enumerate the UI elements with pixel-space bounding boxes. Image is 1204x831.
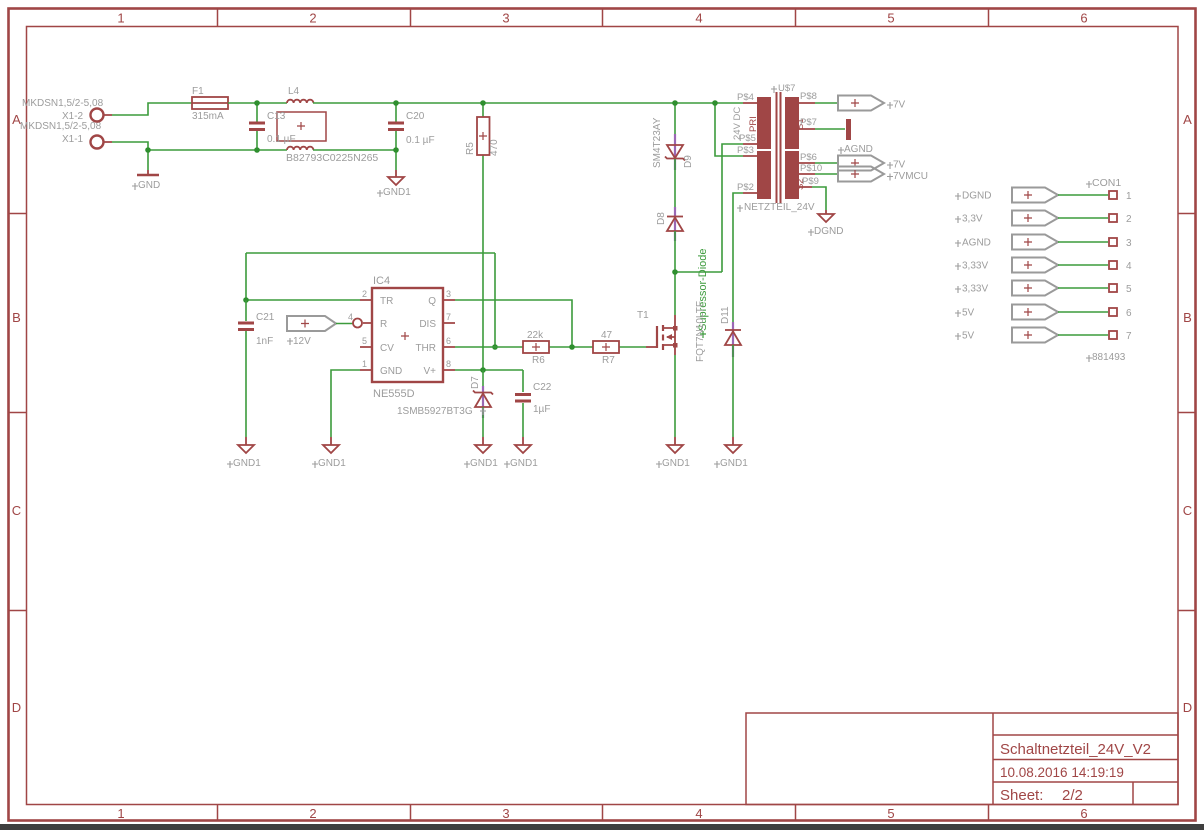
7v-label-mid: 7V xyxy=(893,160,906,171)
pin-p10: P$10 xyxy=(800,163,822,174)
pin-name-cv: CV xyxy=(380,343,394,354)
sheet-bottom-edge xyxy=(0,824,1204,830)
d7-value: 1SMB5927BT3G xyxy=(397,406,473,417)
diode-d7: D7 1SMB5927BT3G xyxy=(397,370,493,437)
con1-part-number: 881493 xyxy=(1092,352,1126,363)
diode-d11: D11 xyxy=(720,193,743,437)
f1-name: F1 xyxy=(192,86,204,97)
pin-p5: P$5 xyxy=(739,133,756,144)
pin-name-thr: THR xyxy=(415,343,436,354)
output-flag-7vmcu: 7VMCU xyxy=(815,167,928,183)
frame-row-c-left: C xyxy=(12,503,21,518)
diode-d8: D8 xyxy=(656,207,683,272)
c13-value: 0.1 µF xyxy=(267,134,296,145)
f1-value: 315mA xyxy=(192,111,224,122)
pin-name-dis: DIS xyxy=(419,319,436,330)
frame-col-6-top: 6 xyxy=(1080,11,1087,26)
c20-value: 0.1 µF xyxy=(406,135,435,146)
supply-flag-12v: 12V xyxy=(287,316,353,347)
gnd1-d11: GND1 xyxy=(714,437,748,469)
gnd1-label: GND1 xyxy=(383,187,411,198)
con1-row-6: 5V 6 xyxy=(955,305,1132,320)
con1-row-2: 3,3V 2 xyxy=(955,211,1132,226)
pin-number-2: 2 xyxy=(362,289,367,299)
gnd1-t1: GND1 xyxy=(656,437,690,469)
gnd1-c22: GND1 xyxy=(504,437,538,469)
r7-value: 47 xyxy=(601,330,613,341)
con1-row-5: 3,33V 5 xyxy=(955,281,1132,296)
project-title: Schaltnetzteil_24V_V2 xyxy=(1000,741,1151,758)
pin-number-3: 3 xyxy=(446,289,451,299)
c21-name: C21 xyxy=(256,312,275,323)
d11-name: D11 xyxy=(720,306,731,324)
frame-row-a-right: A xyxy=(1183,112,1192,127)
frame-col-6-bottom: 6 xyxy=(1080,806,1087,821)
d7-name: D7 xyxy=(470,376,481,389)
con1-row-3: AGND 3 xyxy=(955,235,1132,250)
con1-row-4: 3,33V 4 xyxy=(955,258,1132,273)
con1-pin-number: 3 xyxy=(1126,238,1132,249)
timer-section: C21 1nF 12V IC4 NE555D 2 4 5 1 3 7 6 xyxy=(238,253,646,437)
u7-value: NETZTEIL_24V xyxy=(744,202,815,213)
pin-p4: P$4 xyxy=(737,92,754,103)
con1-net-label: DGND xyxy=(962,191,991,202)
frame-col-1-top: 1 xyxy=(117,11,124,26)
gnd1-symbols: GND1 GND1 GND1 GND1 GND1 GND1 xyxy=(227,437,748,469)
fuse-f1: F1 315mA xyxy=(192,86,228,122)
capacitor-c22: C22 1µF xyxy=(515,370,552,437)
input-connector-x1: MKDSN1,5/2-5,08 X1-2 MKDSN1,5/2-5,08 X1-… xyxy=(20,98,287,191)
frame-col-2-bottom: 2 xyxy=(309,806,316,821)
frame-row-b-right: B xyxy=(1183,310,1192,325)
frame-row-c-right: C xyxy=(1183,503,1192,518)
frame-col-4-bottom: 4 xyxy=(695,806,702,821)
con1-net-label: 5V xyxy=(962,331,975,342)
frame-col-1-bottom: 1 xyxy=(117,806,124,821)
timestamp: 10.08.2016 14:19:19 xyxy=(1000,765,1124,780)
con1-pin-number: 5 xyxy=(1126,284,1132,295)
con1-connector: CON1 DGND 1 3,3V 2 AGND 3 3,33V 4 3,33V xyxy=(955,177,1132,363)
pin-number-8: 8 xyxy=(446,359,451,369)
r5-name: R5 xyxy=(465,142,476,155)
pin-p6: P$6 xyxy=(800,152,817,163)
power-stage: SM4T23AY D9 D8 Supressor-Diode xyxy=(637,100,743,437)
7vmcu-label: 7VMCU xyxy=(893,171,928,182)
x1-1-label: X1-1 xyxy=(62,134,84,145)
gnd1-label: GND1 xyxy=(318,458,346,469)
pin-name-tr: TR xyxy=(380,296,393,307)
gnd1-ic4: GND1 xyxy=(312,437,346,469)
con1-net-label: 3,33V xyxy=(962,284,988,295)
gnd-label: GND xyxy=(138,180,160,191)
pin-name-r: R xyxy=(380,319,387,330)
pin-p9: P$9 xyxy=(802,176,819,187)
agnd-symbol: AGND xyxy=(815,119,873,155)
gnd1-label: GND1 xyxy=(510,458,538,469)
schematic-sheet: 1 2 3 4 5 6 1 2 3 4 5 6 A B C D A B C D … xyxy=(0,0,1204,831)
u7-name: U$7 xyxy=(778,83,795,94)
pin-number-5: 5 xyxy=(362,336,367,346)
con1-net-label: 5V xyxy=(962,308,975,319)
drawing-frame: 1 2 3 4 5 6 1 2 3 4 5 6 A B C D A B C D xyxy=(0,9,1204,831)
frame-row-b-left: B xyxy=(12,310,21,325)
gnd1-label: GND1 xyxy=(662,458,690,469)
con1-pin-number: 1 xyxy=(1126,191,1132,202)
gnd1-c21: GND1 xyxy=(227,437,261,469)
pin-p3: P$3 xyxy=(737,145,754,156)
resistor-r7: 47 R7 xyxy=(593,330,619,366)
x1-2-pad xyxy=(91,109,104,122)
transformer-u7: U$7 NETZTEIL_24V 24V DC PRI S1 S2 P$4 P$… xyxy=(732,83,928,237)
c22-name: C22 xyxy=(533,382,552,393)
sheet-number: 2/2 xyxy=(1062,787,1083,804)
schematic-canvas: 1 2 3 4 5 6 1 2 3 4 5 6 A B C D A B C D … xyxy=(0,0,1204,831)
gnd1-symbol xyxy=(388,177,404,185)
con1-pin-number: 2 xyxy=(1126,214,1132,225)
r6-name: R6 xyxy=(532,355,545,366)
frame-col-3-top: 3 xyxy=(502,11,509,26)
choke-l4: L4 B82793C0225N265 xyxy=(277,86,378,164)
d9-value: SM4T23AY xyxy=(652,117,663,168)
pin4-inversion-bubble xyxy=(353,319,362,328)
con1-net-label: 3,33V xyxy=(962,261,988,272)
ic4-value: NE555D xyxy=(373,388,415,400)
frame-row-d-left: D xyxy=(12,700,21,715)
title-block: Schaltnetzteil_24V_V2 10.08.2016 14:19:1… xyxy=(746,713,1178,805)
pin-number-7: 7 xyxy=(446,312,451,322)
c21-value: 1nF xyxy=(256,336,273,347)
c13-name: C13 xyxy=(267,111,286,122)
primary-label: PRI xyxy=(748,116,759,132)
r5-value: 470 xyxy=(489,139,500,156)
pin-name-vplus: V+ xyxy=(423,366,436,377)
gnd1-label: GND1 xyxy=(470,458,498,469)
con1-row-7: 5V 7 xyxy=(955,328,1132,343)
frame-col-5-top: 5 xyxy=(887,11,894,26)
pin-name-q: Q xyxy=(428,296,436,307)
capacitor-c21: C21 1nF xyxy=(238,300,275,437)
gnd1-label: GND1 xyxy=(233,458,261,469)
l4-name: L4 xyxy=(288,86,300,97)
gnd1-d7: GND1 xyxy=(464,437,498,469)
d9-name: D9 xyxy=(683,155,694,168)
con1-pin-number: 6 xyxy=(1126,308,1132,319)
c20-name: C20 xyxy=(406,111,425,122)
con1-pin-number: 7 xyxy=(1126,331,1132,342)
r6-value: 22k xyxy=(527,330,544,341)
ic4-name: IC4 xyxy=(373,275,390,287)
pin-name-gnd: GND xyxy=(380,366,402,377)
pin-p2: P$2 xyxy=(737,182,754,193)
t1-name: T1 xyxy=(637,310,649,321)
pin-number-1: 1 xyxy=(362,359,367,369)
7v-label-top: 7V xyxy=(893,100,906,111)
r7-name: R7 xyxy=(602,355,615,366)
pin-p8: P$8 xyxy=(800,91,817,102)
pin-p7: P$7 xyxy=(800,117,817,128)
x1-1-pad xyxy=(91,136,104,149)
con1-net-label: 3,3V xyxy=(962,214,983,225)
frame-col-5-bottom: 5 xyxy=(887,806,894,821)
diode-d9: SM4T23AY D9 xyxy=(652,103,694,214)
ic4-ne555: IC4 NE555D 2 4 5 1 3 7 6 8 TR R CV GND Q… xyxy=(348,275,455,400)
l4-value: B82793C0225N265 xyxy=(286,152,378,164)
capacitor-c13: C13 0.1 µF xyxy=(249,103,296,150)
d8-name: D8 xyxy=(656,212,667,225)
t1-value: FQT7N10LTF xyxy=(695,301,706,362)
con1-name: CON1 xyxy=(1092,177,1121,189)
frame-col-2-top: 2 xyxy=(309,11,316,26)
x1-1-type-label: MKDSN1,5/2-5,08 xyxy=(20,121,102,132)
output-flag-7v-mid: 7V xyxy=(815,156,906,171)
con1-pin-number: 4 xyxy=(1126,261,1132,272)
sheet-label: Sheet: xyxy=(1000,787,1043,804)
gnd-symbol: GND xyxy=(132,150,160,191)
gnd1-label: GND1 xyxy=(720,458,748,469)
con1-net-label: AGND xyxy=(962,238,991,249)
12v-label: 12V xyxy=(293,336,311,347)
resistor-r6: 22k R6 xyxy=(523,330,549,366)
output-flag-7v-top: 7V xyxy=(815,96,906,111)
agnd-label: AGND xyxy=(844,144,873,155)
frame-row-d-right: D xyxy=(1183,700,1192,715)
mosfet-t1: T1 FQT7N10LTF xyxy=(637,301,706,437)
frame-col-3-bottom: 3 xyxy=(502,806,509,821)
c22-value: 1µF xyxy=(533,404,550,415)
con1-row-1: DGND 1 xyxy=(955,188,1132,203)
x1-2-type-label: MKDSN1,5/2-5,08 xyxy=(22,98,104,109)
pin-number-6: 6 xyxy=(446,336,451,346)
dgnd-label: DGND xyxy=(814,226,843,237)
pin-number-4: 4 xyxy=(348,312,353,322)
frame-col-4-top: 4 xyxy=(695,11,702,26)
